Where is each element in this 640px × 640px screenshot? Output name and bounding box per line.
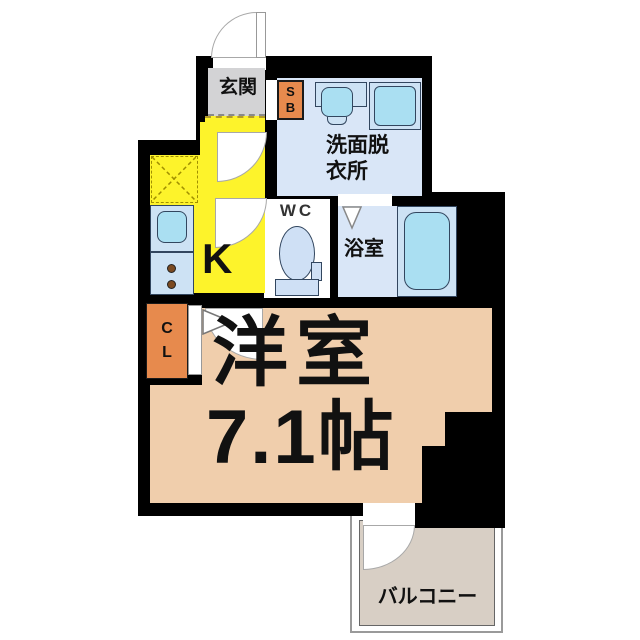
washroom-label-line1: 洗面脱: [326, 134, 389, 157]
bath-door-opening: [338, 194, 392, 206]
refrigerator-x-icon: [152, 157, 196, 201]
closet-letter-l: L: [162, 341, 172, 365]
balcony-label: バルコニー: [360, 586, 495, 608]
shoe-box-letter-b: B: [286, 100, 295, 116]
wall-bottom-right-band: [415, 503, 505, 528]
wc-label: WC: [264, 202, 330, 221]
bathtub-icon: [404, 212, 450, 290]
shoe-box-letter-s: S: [286, 84, 295, 100]
genkan-label: 玄関: [214, 78, 262, 99]
kitchen-label: K: [202, 236, 232, 282]
closet-letter-c: C: [161, 317, 173, 341]
washing-machine-icon: [374, 86, 416, 126]
bath-folding-door-icon: [342, 206, 362, 230]
refrigerator-space: [151, 156, 198, 203]
vanity-sink-icon: [321, 87, 353, 117]
washroom-label-line2: 衣所: [326, 160, 368, 183]
vanity-sink-base: [327, 117, 347, 125]
shoe-box: S B: [277, 80, 304, 120]
entrance-door-arc: [211, 12, 257, 58]
washroom-door-opening: [266, 80, 277, 120]
balcony-door-opening: [363, 503, 415, 525]
toilet-base: [275, 279, 319, 296]
bath-label: 浴室: [336, 238, 392, 260]
main-room-name: 洋室: [212, 312, 380, 396]
stove-knob-top: [167, 264, 176, 273]
floor-plan: 玄関 S B 洗面脱 衣所 浴室 WC K C L: [0, 0, 640, 640]
toilet-bowl-icon: [279, 226, 315, 281]
stove-knob-bottom: [167, 280, 176, 289]
entrance-door-leaf: [256, 12, 266, 58]
closet: C L: [146, 303, 188, 379]
main-room-size: 7.1帖: [206, 396, 396, 480]
kitchen-sink-icon: [157, 211, 187, 243]
closet-sliding-door: [188, 305, 202, 375]
